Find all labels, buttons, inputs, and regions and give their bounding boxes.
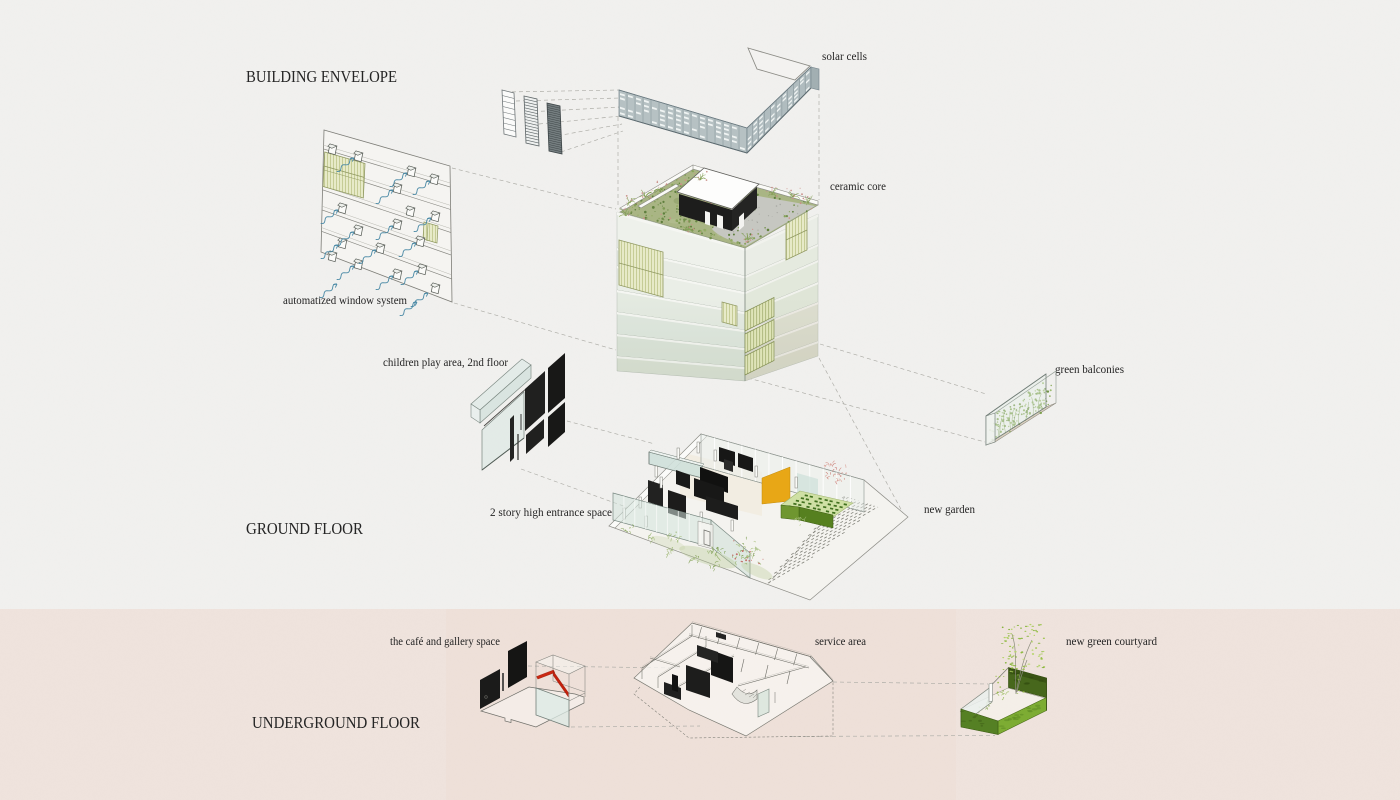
svg-text:new garden: new garden: [924, 502, 975, 516]
svg-text:service area: service area: [815, 634, 867, 648]
svg-text:automatized window system: automatized window system: [283, 293, 407, 307]
svg-text:BUILDING ENVELOPE: BUILDING ENVELOPE: [246, 67, 397, 86]
svg-text:the café and gallery space: the café and gallery space: [390, 634, 500, 648]
svg-text:ceramic core: ceramic core: [830, 179, 886, 193]
svg-text:new green courtyard: new green courtyard: [1066, 634, 1157, 648]
svg-text:GROUND FLOOR: GROUND FLOOR: [246, 519, 364, 538]
svg-text:children play area, 2nd floor: children play area, 2nd floor: [383, 355, 508, 369]
svg-text:solar cells: solar cells: [822, 49, 867, 63]
svg-text:UNDERGROUND FLOOR: UNDERGROUND FLOOR: [252, 713, 421, 732]
svg-text:green balconies: green balconies: [1055, 362, 1124, 376]
svg-text:2 story high entrance space: 2 story high entrance space: [490, 505, 612, 519]
